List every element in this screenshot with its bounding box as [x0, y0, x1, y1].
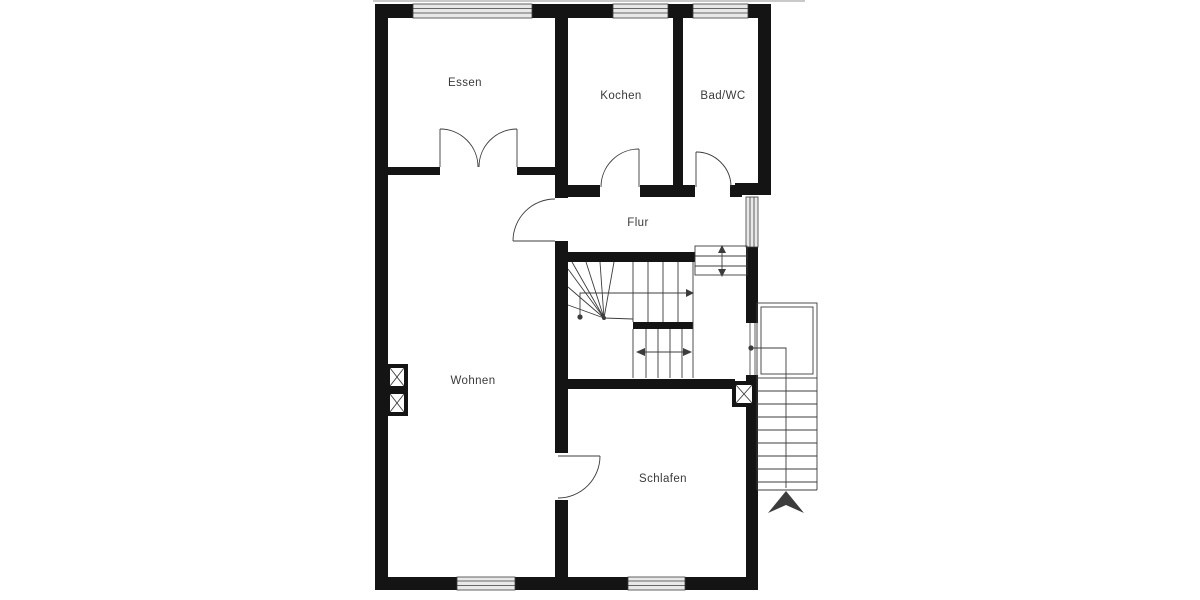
- stair-winder-center-dot: [602, 316, 606, 320]
- chimney-block-schlafen: [732, 381, 756, 407]
- double-door-essen: [440, 129, 517, 167]
- window-essen: [413, 4, 532, 18]
- floorplan-canvas: Essen Kochen Bad/WC Flur Wohnen Schlafen: [0, 0, 1200, 600]
- room-label-wohnen: Wohnen: [450, 375, 495, 387]
- wall-bad-flur-right: [730, 185, 742, 197]
- steps-arrow-down-icon: [718, 269, 726, 277]
- window-bad-wc: [693, 4, 748, 18]
- room-label-kochen: Kochen: [600, 90, 641, 102]
- exterior-stair-up-arrow-icon: [768, 491, 804, 513]
- wall-kochen-flur-right: [640, 185, 673, 197]
- exterior-staircase: [748, 303, 817, 513]
- wall-schlafen-top: [555, 379, 735, 389]
- door-wohnen-flur: [513, 199, 555, 241]
- door-schlafen: [558, 456, 600, 498]
- interior-walls: [388, 18, 742, 577]
- exterior-stair-edges: [757, 378, 817, 490]
- room-label-flur: Flur: [627, 217, 648, 229]
- wall-stairwell-top: [555, 252, 695, 262]
- stair-upper-treads: [633, 262, 678, 322]
- wall-center-vertical-lower: [555, 500, 568, 577]
- window-schlafen: [628, 577, 685, 590]
- wall-stair-mid-bar: [633, 322, 693, 329]
- doors: [440, 129, 731, 498]
- wall-essen-wohnen-right: [517, 167, 555, 175]
- door-bad-wc: [696, 152, 731, 187]
- wall-center-vertical-upper: [555, 18, 568, 198]
- wall-left: [375, 4, 388, 590]
- window-flur-right: [746, 197, 758, 247]
- chimney-flues: [386, 364, 756, 416]
- exterior-landing-inner: [761, 307, 813, 374]
- door-kochen: [601, 149, 639, 187]
- room-label-essen: Essen: [448, 77, 482, 89]
- wall-bottom: [375, 577, 758, 590]
- wall-kochen-flur-left: [568, 185, 600, 197]
- window-wohnen: [457, 577, 515, 590]
- wall-center-vertical-mid: [555, 241, 568, 453]
- wall-kochen-bad-divider: [673, 18, 683, 197]
- stair-down-arrow-left-icon: [636, 348, 645, 356]
- stair-winder-treads: [568, 262, 633, 319]
- room-label-schlafen: Schlafen: [639, 473, 687, 485]
- entrance-steps: [695, 245, 747, 277]
- floorplan-drawing: Essen Kochen Bad/WC Flur Wohnen Schlafen: [0, 0, 1200, 600]
- stair-down-arrow-right-icon: [683, 348, 692, 356]
- exterior-stair-treads: [757, 391, 817, 482]
- window-kochen: [613, 4, 668, 18]
- interior-staircase: [568, 262, 694, 378]
- wall-essen-wohnen-left: [388, 167, 440, 175]
- wall-right-upper: [758, 4, 771, 195]
- wall-bad-flur-left: [683, 185, 695, 197]
- exterior-landing-outer: [757, 303, 817, 378]
- room-label-bad-wc: Bad/WC: [700, 90, 745, 102]
- chimney-block-wohnen: [386, 364, 408, 416]
- wall-right-mid: [746, 247, 758, 323]
